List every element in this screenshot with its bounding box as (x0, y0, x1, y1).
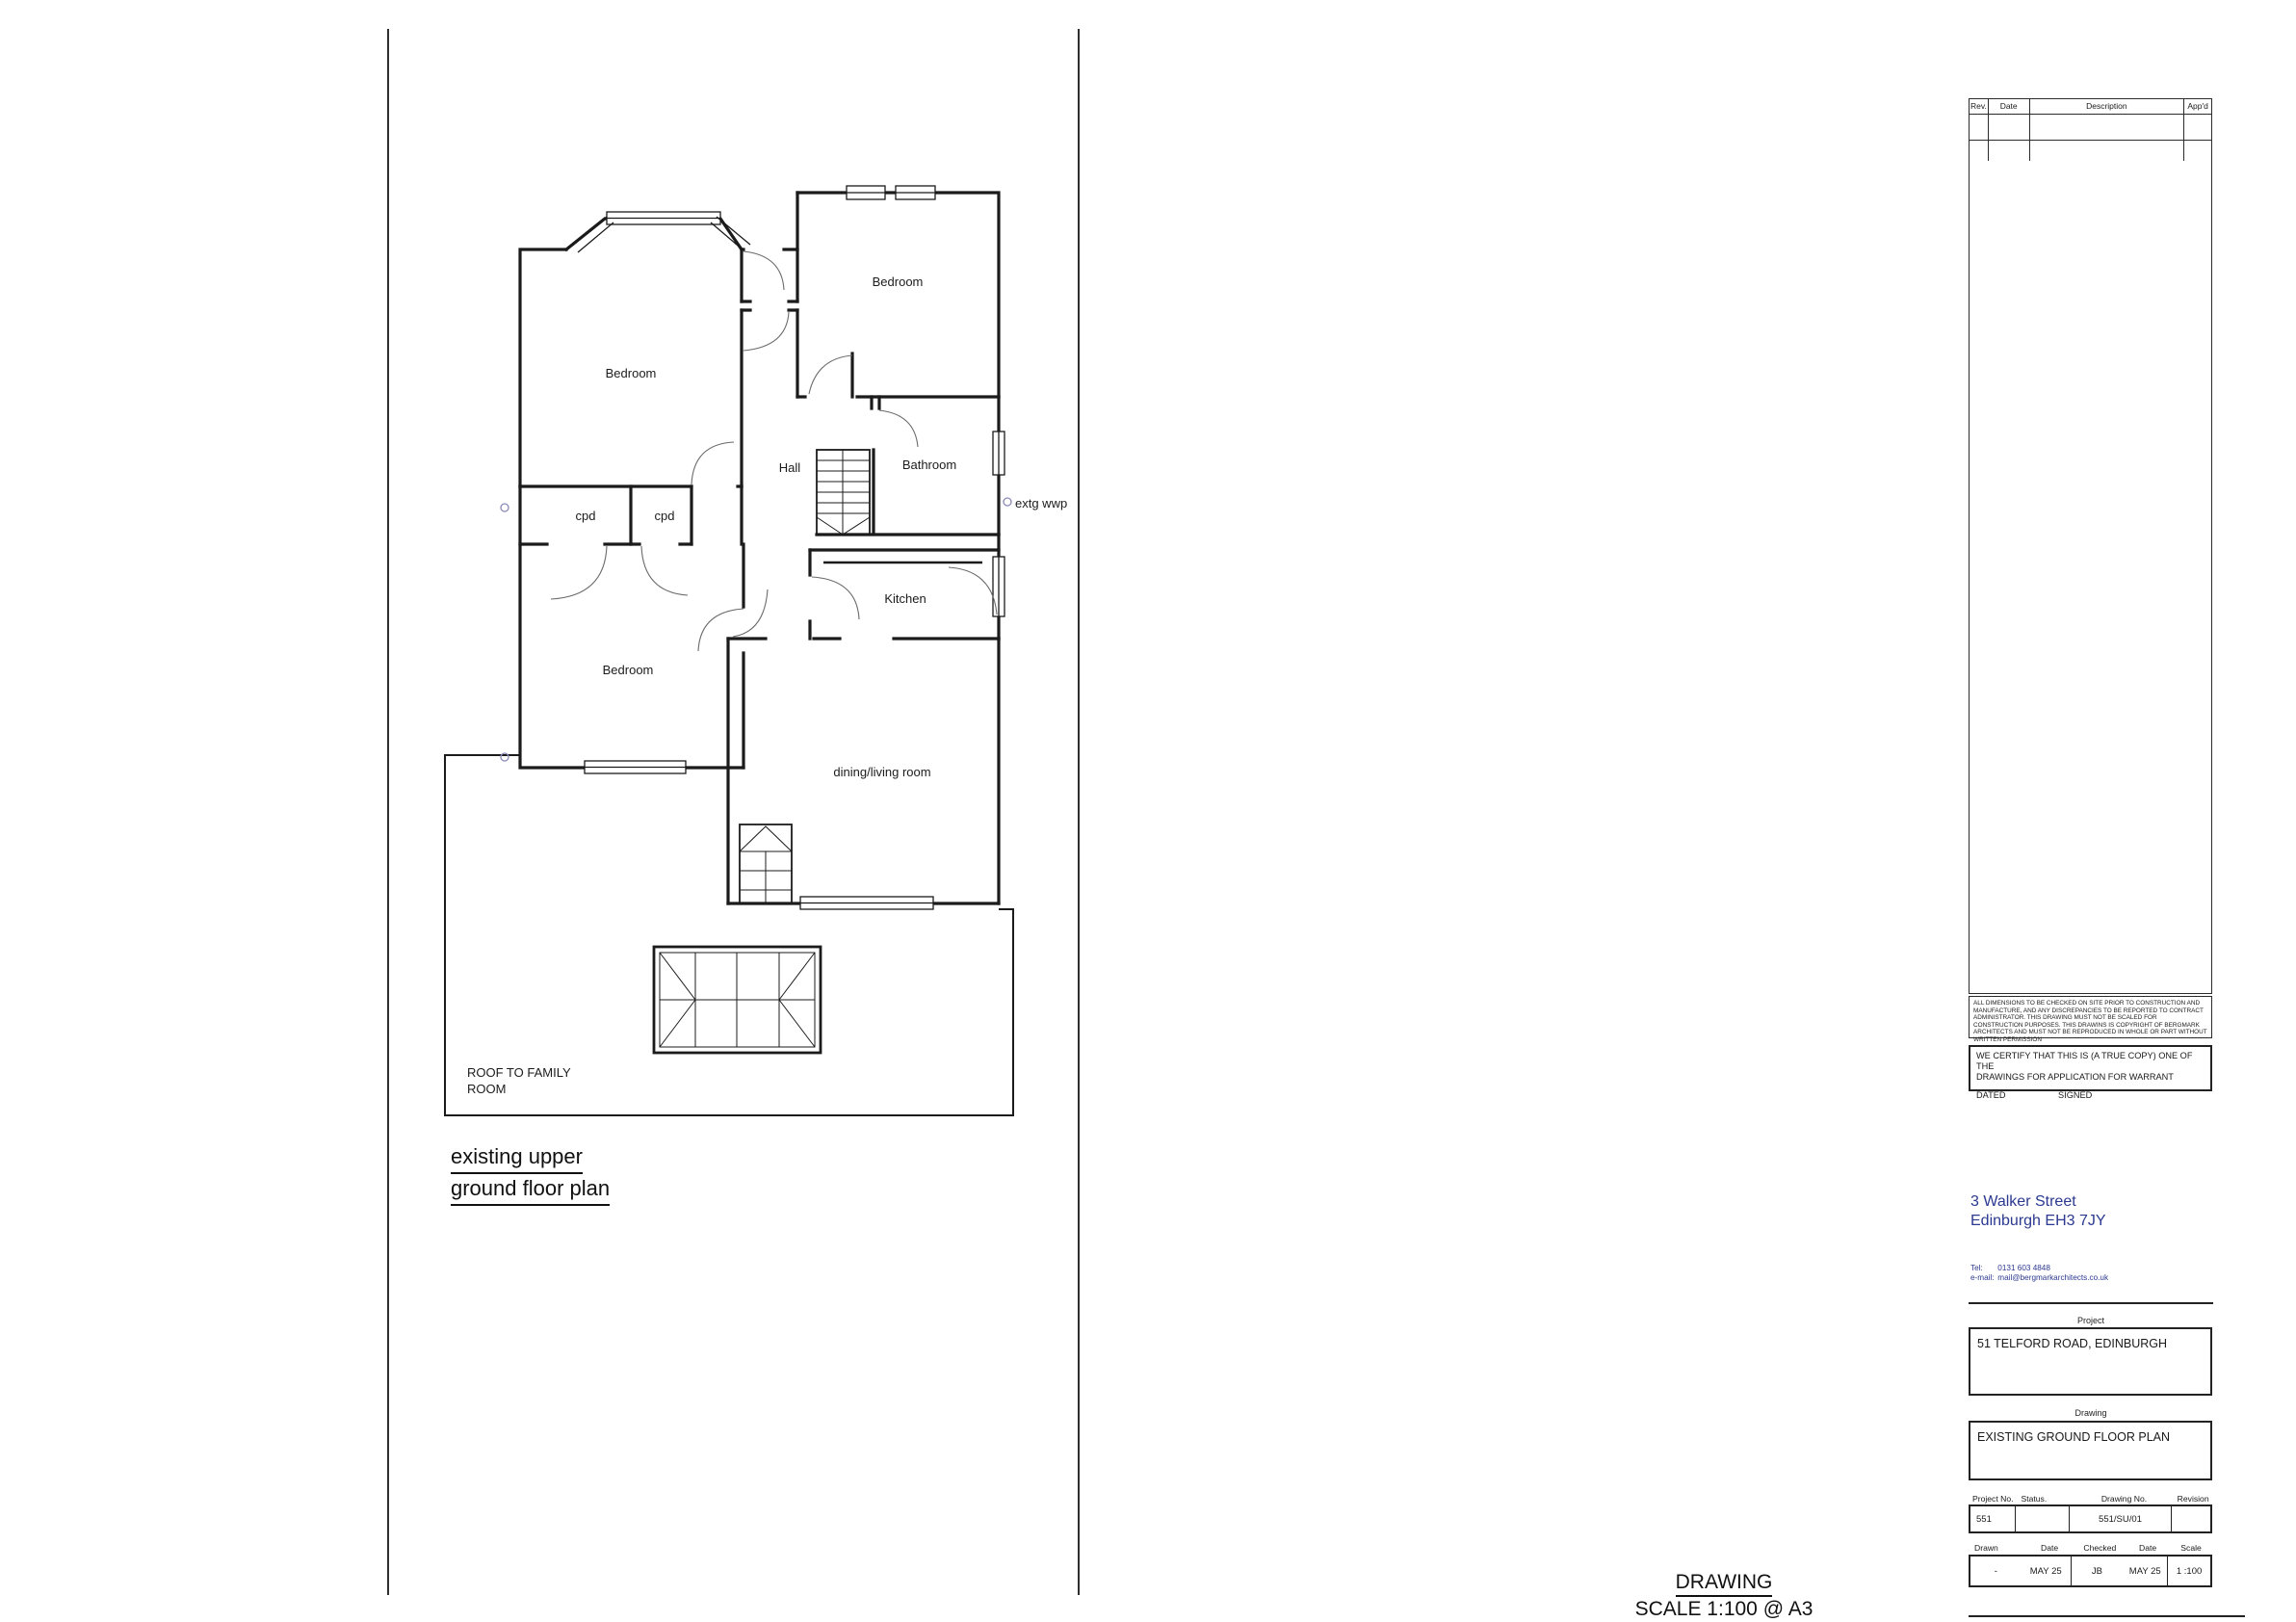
drawn-value: - (1970, 1557, 2022, 1585)
drawn-label: Drawn (1969, 1543, 2025, 1553)
checked-date-value: MAY 25 (2123, 1557, 2168, 1585)
footer-line1: DRAWING (1676, 1570, 1773, 1597)
project-box: 51 TELFORD ROAD, EDINBURGH (1969, 1327, 2212, 1396)
revision-value (2172, 1506, 2210, 1531)
project-label: Project (1969, 1316, 2213, 1325)
certification-box: WE CERTIFY THAT THIS IS (A TRUE COPY) ON… (1969, 1045, 2212, 1091)
revision-table-row (1970, 115, 2211, 141)
door-swing-arcs (551, 251, 997, 651)
description-col-header: Description (2030, 99, 2185, 115)
project-value: 51 TELFORD ROAD, EDINBURGH (1977, 1337, 2167, 1350)
sheet-footer: DRAWING SCALE 1:100 @ A3 (1589, 1570, 1859, 1622)
drawn-date-label: Date (2025, 1543, 2074, 1553)
room-label-bedroom-lower: Bedroom (603, 663, 654, 677)
fields-row1-boxes: 551 551/SU/01 (1969, 1504, 2212, 1533)
checked-value: JB (2072, 1557, 2124, 1585)
footer-line2: SCALE 1:100 @ A3 (1635, 1597, 1813, 1622)
project-no-value: 551 (1970, 1506, 2016, 1531)
checked-date-label: Date (2126, 1543, 2170, 1553)
dining-stair (740, 824, 792, 903)
extg-wwp-note: extg wwp (1015, 496, 1067, 510)
revision-table: Rev. Date Description App'd (1969, 98, 2212, 994)
project-no-label: Project No. (1969, 1494, 2017, 1504)
fields-row2-labels: Drawn Date Checked Date Scale (1969, 1543, 2212, 1553)
disclaimer-text: ALL DIMENSIONS TO BE CHECKED ON SITE PRI… (1973, 1000, 2207, 1043)
tel-label: Tel: (1970, 1264, 1996, 1273)
extg-wwp-marker-icon (1004, 498, 1011, 506)
appd-col-header: App'd (2184, 99, 2211, 115)
disclaimer-box: ALL DIMENSIONS TO BE CHECKED ON SITE PRI… (1969, 996, 2212, 1038)
status-value (2016, 1506, 2070, 1531)
fields-row2-boxes: - MAY 25 JB MAY 25 1 :100 (1969, 1555, 2212, 1587)
revision-table-row (1970, 141, 2211, 161)
room-label-bathroom: Bathroom (902, 458, 956, 472)
drawn-date-value: MAY 25 (2022, 1557, 2072, 1585)
revision-table-header: Rev. Date Description App'd (1970, 99, 2211, 115)
address-line2: Edinburgh EH3 7JY (1970, 1212, 2106, 1231)
date-col-header: Date (1989, 99, 2030, 115)
practice-address: 3 Walker Street Edinburgh EH3 7JY (1970, 1192, 2106, 1231)
status-label: Status. (2017, 1494, 2074, 1504)
title-block-bottom-line (1969, 1615, 2245, 1617)
plan-title-line1: existing upper (451, 1142, 583, 1174)
rooflight (654, 947, 821, 1053)
drawing-box: EXISTING GROUND FLOOR PLAN (1969, 1421, 2212, 1480)
room-label-cpd-2: cpd (655, 509, 675, 523)
room-label-kitchen: Kitchen (884, 591, 926, 606)
wwp-markers (501, 498, 1011, 761)
drawing-label: Drawing (1969, 1408, 2213, 1418)
room-label-hall: Hall (779, 460, 801, 475)
room-label-dining: dining/living room (833, 765, 930, 779)
drawing-sheet: Bedroom Bedroom Hall Bathroom cpd cpd Ki… (0, 0, 2296, 1622)
hall-stair (817, 450, 870, 535)
email-value: mail@bergmarkarchitects.co.uk (1997, 1273, 2108, 1282)
windows (570, 186, 1004, 909)
plan-title: existing upper ground floor plan (451, 1142, 610, 1206)
room-label-bedroom-top-left: Bedroom (606, 366, 657, 380)
scale-label: Scale (2170, 1543, 2212, 1553)
wwp-marker-icon (501, 504, 509, 511)
title-block-rule (1969, 1302, 2213, 1304)
tel-value: 0131 603 4848 (1997, 1264, 2050, 1272)
rev-col-header: Rev. (1970, 99, 1989, 115)
floor-plan: Bedroom Bedroom Hall Bathroom cpd cpd Ki… (0, 0, 2296, 1622)
email-label: e-mail: (1970, 1273, 1996, 1283)
plan-walls (520, 193, 999, 903)
revision-label: Revision (2174, 1494, 2212, 1504)
fields-row1-labels: Project No. Status. Drawing No. Revision (1969, 1494, 2212, 1504)
drawing-no-value: 551/SU/01 (2070, 1506, 2172, 1531)
roof-note-line1: ROOF TO FAMILY (467, 1065, 571, 1080)
practice-contact: Tel: 0131 603 4848 e-mail: mail@bergmark… (1970, 1264, 2108, 1283)
certificate-line2: DRAWINGS FOR APPLICATION FOR WARRANT (1976, 1072, 2205, 1083)
signed-label: SIGNED (2058, 1090, 2092, 1101)
drawing-no-label: Drawing No. (2074, 1494, 2175, 1504)
roof-note-line2: ROOM (467, 1082, 506, 1096)
room-label-cpd-1: cpd (576, 509, 596, 523)
drawing-value: EXISTING GROUND FLOOR PLAN (1977, 1430, 2170, 1444)
plan-title-line2: ground floor plan (451, 1174, 610, 1206)
certificate-line1: WE CERTIFY THAT THIS IS (A TRUE COPY) ON… (1976, 1051, 2205, 1072)
checked-label: Checked (2074, 1543, 2126, 1553)
room-label-bedroom-top-right: Bedroom (873, 275, 924, 289)
scale-value: 1 :100 (2168, 1557, 2210, 1585)
address-line1: 3 Walker Street (1970, 1192, 2106, 1212)
dated-label: DATED (1976, 1090, 2005, 1100)
